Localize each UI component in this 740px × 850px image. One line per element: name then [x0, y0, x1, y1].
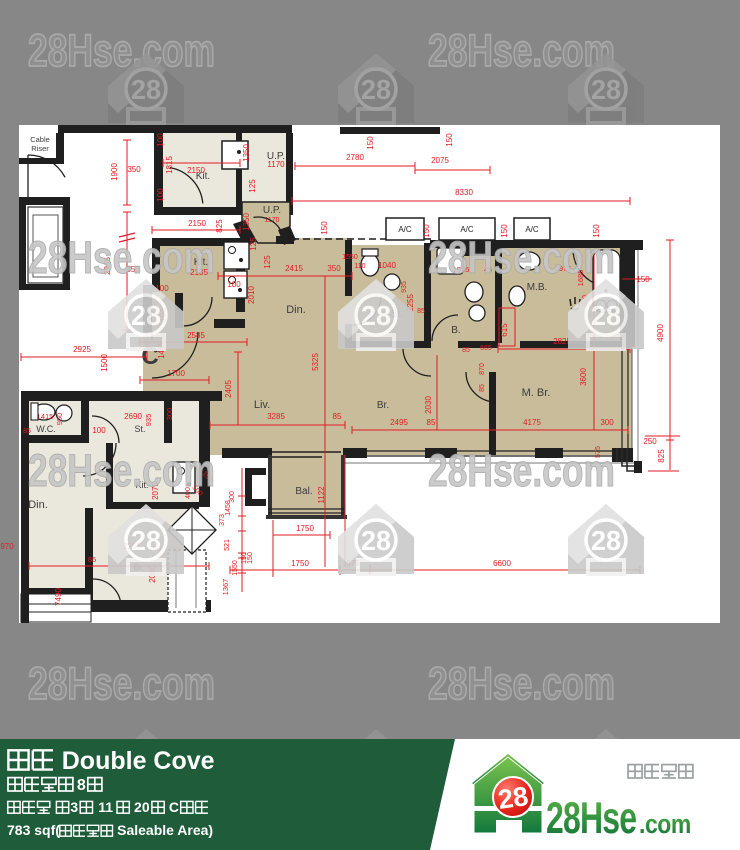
svg-text:373: 373	[219, 514, 226, 526]
svg-text:125: 125	[249, 237, 258, 251]
svg-text:2690: 2690	[124, 412, 142, 421]
svg-text:28: 28	[131, 525, 161, 556]
svg-text:350: 350	[327, 264, 341, 273]
svg-text:4900: 4900	[656, 324, 665, 342]
svg-text:2415: 2415	[285, 264, 303, 273]
svg-text:1350: 1350	[242, 213, 251, 231]
svg-text:2780: 2780	[346, 153, 364, 162]
svg-text:1040: 1040	[378, 261, 396, 270]
svg-text:20: 20	[134, 799, 150, 815]
svg-text:3: 3	[70, 799, 78, 815]
svg-text:2585: 2585	[187, 331, 205, 340]
svg-text:C: C	[169, 799, 179, 815]
svg-text:28Hse.com: 28Hse.com	[428, 445, 615, 496]
svg-text:150: 150	[320, 221, 329, 235]
svg-text:M. Br.: M. Br.	[522, 387, 551, 399]
svg-text:2150: 2150	[188, 219, 206, 228]
svg-text:Double Cove: Double Cove	[62, 747, 215, 775]
svg-text:1815: 1815	[165, 156, 174, 174]
svg-text:28Hse: 28Hse	[546, 794, 637, 843]
svg-text:150: 150	[366, 136, 375, 150]
svg-text:B.: B.	[451, 325, 460, 336]
svg-text:870: 870	[479, 363, 486, 375]
svg-text:28Hse.com: 28Hse.com	[428, 658, 615, 709]
svg-text:Din.: Din.	[28, 499, 48, 511]
svg-text:1550: 1550	[342, 254, 358, 261]
svg-text:150: 150	[445, 133, 454, 147]
svg-text:1170: 1170	[267, 160, 285, 169]
svg-text:28: 28	[496, 781, 530, 815]
svg-text:521: 521	[224, 539, 231, 551]
svg-text:Liv.: Liv.	[254, 399, 270, 411]
svg-text:1750: 1750	[291, 559, 309, 568]
svg-text:1750: 1750	[296, 524, 314, 533]
svg-text:Cable: Cable	[30, 135, 50, 144]
svg-text:85: 85	[333, 412, 342, 421]
svg-text:615: 615	[500, 323, 509, 337]
svg-text:300: 300	[165, 408, 174, 421]
svg-text:150: 150	[247, 552, 254, 564]
svg-text:1458: 1458	[225, 500, 232, 516]
svg-text:28: 28	[131, 74, 161, 105]
svg-text:110: 110	[354, 263, 365, 270]
svg-text:Bal.: Bal.	[295, 486, 312, 497]
svg-text:28: 28	[591, 74, 621, 105]
svg-text:2495: 2495	[390, 418, 408, 427]
svg-text:350: 350	[127, 165, 141, 174]
svg-text:28Hse.com: 28Hse.com	[28, 658, 215, 709]
svg-text:3285: 3285	[267, 412, 285, 421]
svg-text:2925: 2925	[73, 345, 91, 354]
svg-text:85: 85	[427, 418, 436, 427]
svg-text:A/C: A/C	[398, 225, 412, 234]
svg-text:11: 11	[98, 799, 113, 815]
svg-text:W.C.: W.C.	[36, 424, 56, 434]
svg-text:783 sqf(: 783 sqf(	[7, 822, 60, 838]
svg-text:2405: 2405	[224, 380, 233, 398]
svg-text:665: 665	[480, 345, 492, 352]
svg-text:28Hse.com: 28Hse.com	[28, 445, 215, 496]
svg-text:825: 825	[215, 219, 224, 233]
svg-text:Br.: Br.	[377, 400, 389, 411]
svg-text:3600: 3600	[579, 368, 588, 386]
svg-text:85: 85	[417, 308, 425, 315]
svg-text:2075: 2075	[431, 156, 449, 165]
svg-text:28Hse.com: 28Hse.com	[28, 232, 215, 283]
svg-text:7490: 7490	[54, 588, 63, 606]
svg-text:28Hse.com: 28Hse.com	[428, 25, 615, 76]
svg-text:935: 935	[144, 414, 153, 427]
svg-text:85: 85	[88, 555, 96, 564]
svg-text:100: 100	[156, 188, 165, 202]
svg-text:28: 28	[591, 300, 621, 331]
svg-text:85: 85	[462, 347, 470, 354]
svg-text:28: 28	[131, 300, 161, 331]
svg-text:935: 935	[401, 281, 408, 293]
svg-text:28: 28	[361, 300, 391, 331]
svg-text:28: 28	[361, 525, 391, 556]
svg-text:85: 85	[23, 428, 31, 435]
svg-text:1550: 1550	[232, 560, 239, 576]
svg-text:2030: 2030	[424, 396, 433, 414]
svg-text:Saleable Area): Saleable Area)	[117, 822, 213, 838]
svg-text:U.P.: U.P.	[263, 205, 281, 216]
svg-text:125: 125	[263, 255, 272, 269]
svg-text:950: 950	[55, 413, 64, 426]
svg-text:1500: 1500	[100, 354, 109, 372]
svg-text:8330: 8330	[455, 188, 473, 197]
svg-text:28Hse.com: 28Hse.com	[28, 25, 215, 76]
svg-text:28: 28	[361, 74, 391, 105]
svg-text:1415: 1415	[37, 412, 54, 421]
svg-text:1900: 1900	[110, 163, 119, 181]
svg-text:M.B.: M.B.	[527, 282, 548, 293]
svg-text:125: 125	[248, 179, 257, 193]
svg-text:28Hse.com: 28Hse.com	[428, 232, 615, 283]
svg-text:Din.: Din.	[286, 304, 306, 316]
svg-text:6600: 6600	[493, 559, 511, 568]
svg-text:4175: 4175	[523, 418, 541, 427]
svg-text:1122: 1122	[317, 486, 326, 504]
svg-text:2010: 2010	[247, 286, 256, 304]
svg-text:300: 300	[600, 418, 614, 427]
svg-text:8: 8	[77, 777, 86, 794]
svg-text:1367: 1367	[221, 579, 230, 596]
svg-text:825: 825	[657, 449, 666, 463]
svg-text:1700: 1700	[167, 369, 185, 378]
svg-text:100: 100	[227, 280, 241, 289]
svg-text:85: 85	[479, 384, 486, 392]
svg-text:28: 28	[591, 525, 621, 556]
svg-text:100: 100	[92, 426, 106, 435]
svg-text:2150: 2150	[187, 166, 205, 175]
svg-text:970: 970	[0, 542, 14, 551]
svg-text:.com: .com	[639, 809, 691, 839]
svg-text:1350: 1350	[242, 144, 251, 162]
svg-text:Riser: Riser	[31, 144, 49, 153]
svg-text:5325: 5325	[311, 353, 320, 371]
svg-text:100: 100	[156, 133, 165, 147]
svg-text:250: 250	[643, 437, 657, 446]
